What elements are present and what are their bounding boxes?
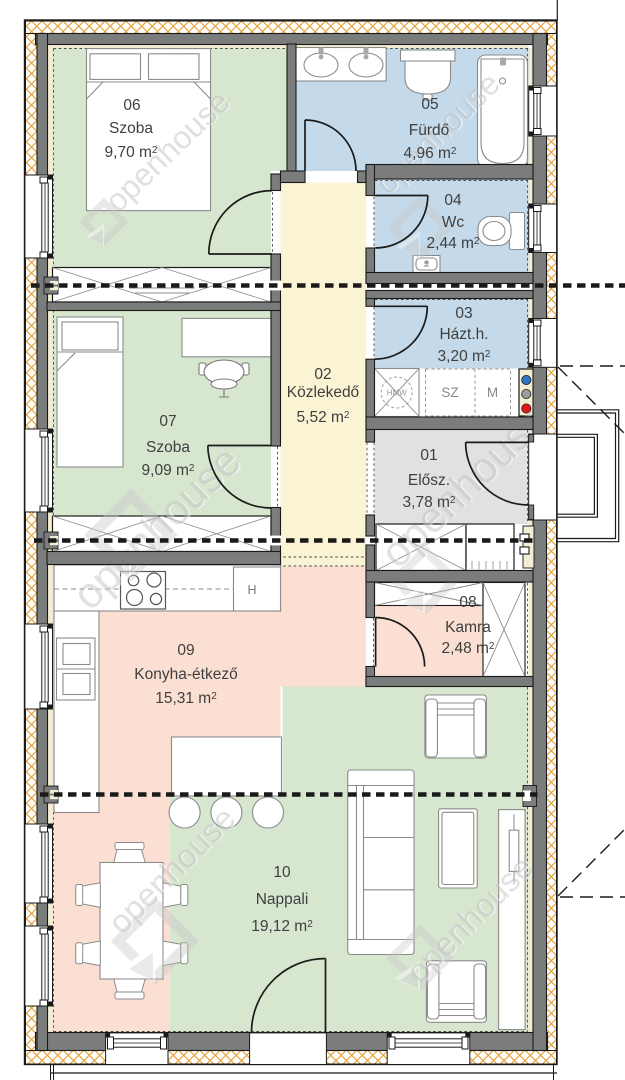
svg-text:08: 08	[459, 594, 476, 611]
svg-text:2,44 m2: 2,44 m2	[427, 235, 480, 252]
svg-text:SZ: SZ	[441, 385, 458, 400]
svg-text:03: 03	[455, 305, 472, 322]
svg-text:10: 10	[273, 864, 291, 881]
svg-text:5,52 m2: 5,52 m2	[297, 409, 350, 426]
svg-text:4,96 m2: 4,96 m2	[404, 145, 457, 162]
svg-text:9,70 m2: 9,70 m2	[105, 144, 158, 161]
svg-text:Nappali: Nappali	[256, 891, 309, 908]
svg-text:M: M	[487, 385, 498, 400]
svg-text:Konyha-étkező: Konyha-étkező	[134, 666, 237, 683]
svg-text:2,48 m2: 2,48 m2	[442, 640, 495, 657]
svg-text:Szoba: Szoba	[109, 120, 153, 137]
svg-text:06: 06	[123, 97, 140, 114]
svg-text:Wc: Wc	[442, 214, 465, 231]
svg-text:19,12 m2: 19,12 m2	[251, 918, 313, 935]
svg-text:15,31 m2: 15,31 m2	[155, 690, 217, 707]
svg-text:01: 01	[420, 447, 437, 464]
svg-text:04: 04	[444, 192, 462, 209]
svg-text:Közlekedő: Közlekedő	[287, 384, 359, 401]
svg-text:3,20 m2: 3,20 m2	[438, 348, 491, 365]
svg-text:07: 07	[159, 413, 176, 430]
svg-text:H: H	[247, 583, 256, 597]
svg-text:09: 09	[177, 642, 194, 659]
svg-text:Házt.h.: Házt.h.	[439, 326, 488, 343]
svg-text:Fürdő: Fürdő	[409, 122, 450, 139]
svg-text:Szoba: Szoba	[146, 439, 190, 456]
svg-text:Kamra: Kamra	[445, 619, 491, 636]
svg-text:02: 02	[314, 366, 331, 383]
svg-text:HMW: HMW	[387, 389, 407, 398]
svg-text:Elősz.: Elősz.	[408, 472, 450, 489]
svg-text:05: 05	[421, 96, 438, 113]
svg-text:3,78 m2: 3,78 m2	[403, 494, 456, 511]
svg-text:9,09 m2: 9,09 m2	[142, 462, 195, 479]
